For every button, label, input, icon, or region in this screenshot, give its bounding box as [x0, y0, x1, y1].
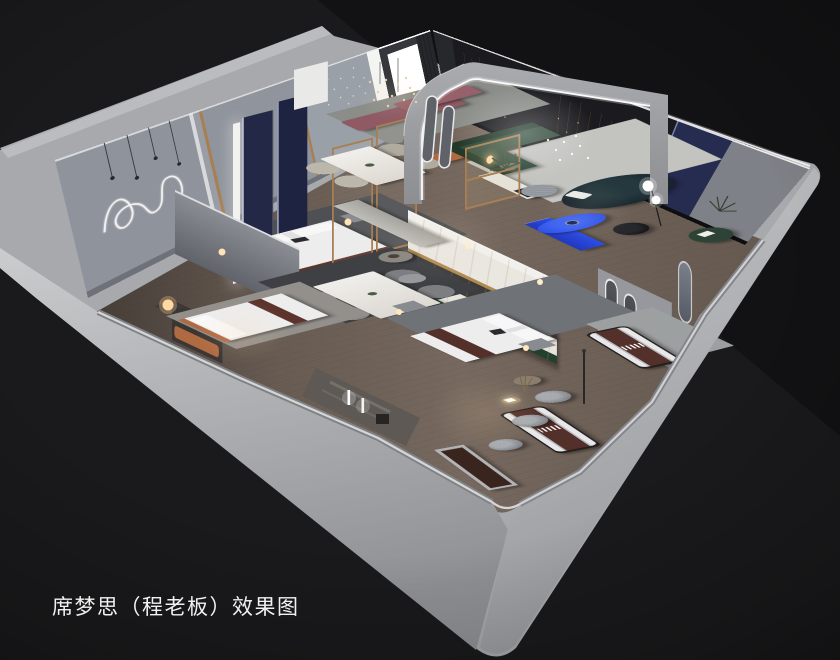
caption-title: 席梦思（程老板）效果图 — [52, 591, 300, 621]
front-walls-graphic — [0, 0, 840, 660]
front-wall-southwest — [0, 248, 508, 650]
render-stage: 席梦思（程老板）效果图 — [0, 0, 840, 660]
front-wall-southeast — [480, 168, 819, 654]
